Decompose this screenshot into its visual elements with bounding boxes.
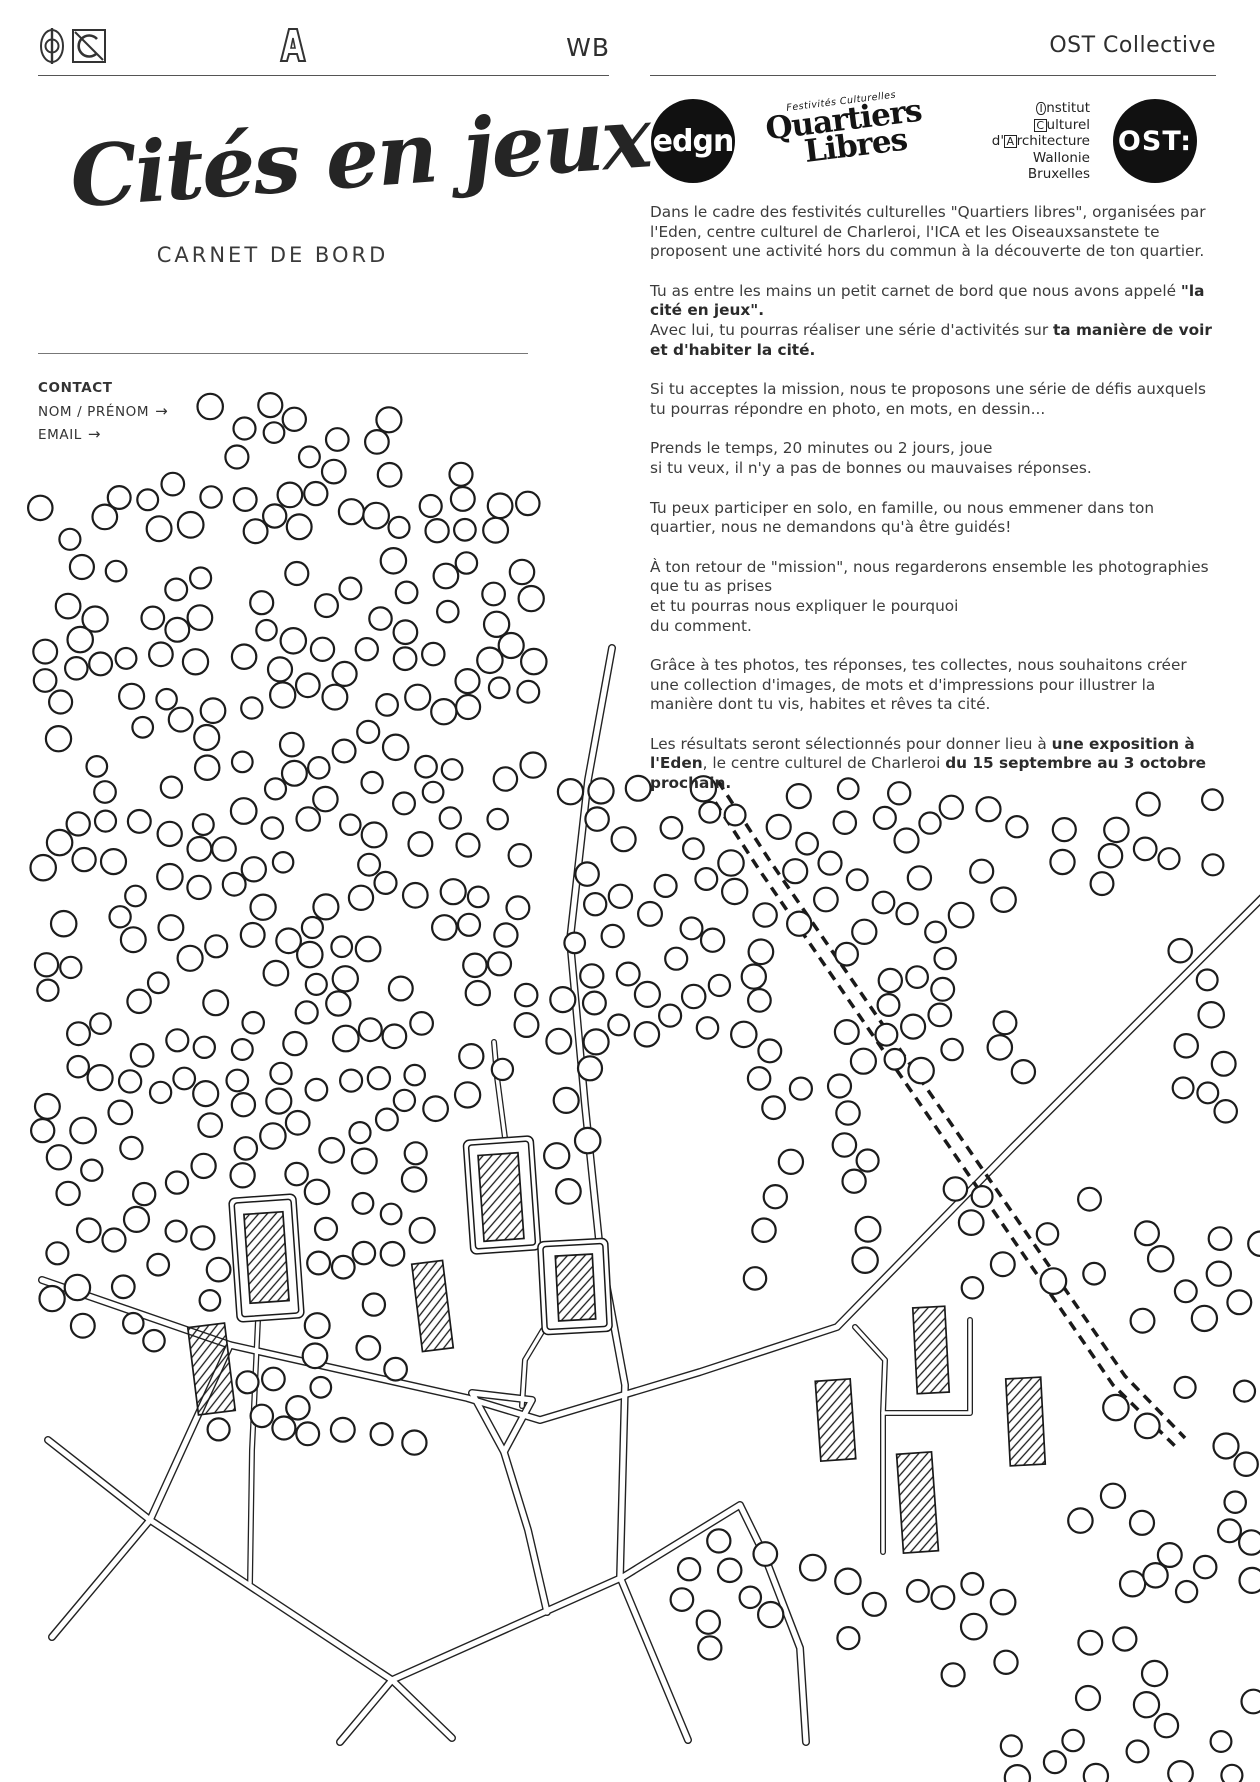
ica-a-icon	[276, 26, 310, 64]
ica-wallonie-bruxelles-logo: InstitutCultureld'ArchitectureWallonieBr…	[950, 100, 1090, 183]
contact-block: CONTACT NOM / PRÉNOM→ EMAIL→	[38, 380, 168, 448]
paragraph: Tu peux participer en solo, en famille, …	[650, 499, 1218, 538]
intro-text: Dans le cadre des festivités culturelles…	[650, 203, 1218, 814]
booklet-cover-page: WB OST Collective Cités en jeux CARNET D…	[0, 0, 1260, 1782]
header-icons	[38, 27, 107, 65]
ost-collective-credit: OST Collective	[1049, 33, 1216, 58]
ica-logo-line: Culturel	[950, 117, 1090, 134]
box-letter-icon: A	[1004, 135, 1017, 148]
wallonie-bruxelles-mark: WB	[558, 33, 610, 62]
ica-i-icon	[38, 27, 66, 65]
header-rule-right	[650, 75, 1216, 76]
paragraph: À ton retour de "mission", nous regarder…	[650, 558, 1218, 636]
ost-logo: OST:	[1113, 99, 1197, 183]
paragraph: Si tu acceptes la mission, nous te propo…	[650, 380, 1218, 419]
edgn-logo: edgn	[651, 99, 735, 183]
contact-label: CONTACT	[38, 380, 168, 396]
ica-c-icon	[71, 28, 107, 64]
ica-logo-line: d'Architecture	[950, 133, 1090, 150]
box-letter-icon: C	[1034, 119, 1047, 132]
paragraph: Dans le cadre des festivités culturelles…	[650, 203, 1218, 262]
ica-logo-line: Bruxelles	[950, 166, 1090, 183]
ica-logo-line: Wallonie	[950, 150, 1090, 167]
ica-logo-line: Institut	[950, 100, 1090, 117]
oval-letter-icon: I	[1036, 102, 1046, 115]
page-subtitle: CARNET DE BORD	[120, 243, 425, 267]
paragraph: Grâce à tes photos, tes réponses, tes co…	[650, 656, 1218, 715]
contact-rule	[38, 353, 528, 354]
arrow-icon: →	[155, 402, 168, 420]
header-rule-left	[38, 75, 609, 76]
paragraph: Prends le temps, 20 minutes ou 2 jours, …	[650, 439, 1218, 478]
arrow-icon: →	[88, 425, 101, 443]
paragraph: Les résultats seront sélectionnés pour d…	[650, 735, 1218, 794]
paragraph: Tu as entre les mains un petit carnet de…	[650, 282, 1218, 360]
contact-field-name: NOM / PRÉNOM→	[38, 402, 168, 420]
contact-field-email: EMAIL→	[38, 425, 168, 443]
